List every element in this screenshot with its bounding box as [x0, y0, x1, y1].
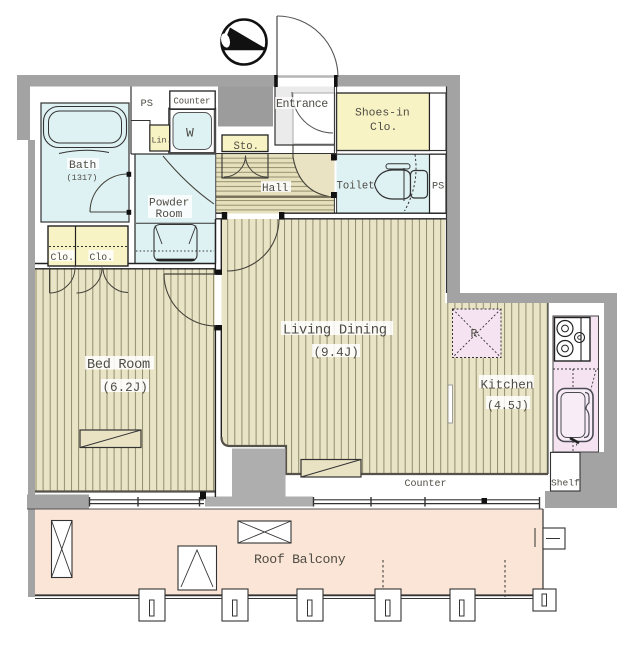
svg-text:(1317): (1317) [67, 173, 98, 183]
svg-text:W: W [186, 126, 194, 141]
svg-text:Room: Room [156, 209, 183, 221]
svg-text:Clo.: Clo. [370, 122, 397, 134]
svg-text:PS: PS [141, 98, 153, 110]
svg-text:PS: PS [432, 182, 444, 193]
svg-text:Bed Room: Bed Room [87, 358, 150, 373]
svg-text:Counter: Counter [405, 479, 447, 490]
svg-text:Counter: Counter [174, 97, 211, 107]
svg-text:Entrance: Entrance [276, 98, 328, 111]
svg-text:Shelf: Shelf [551, 478, 580, 489]
svg-text:Shoes-in: Shoes-in [355, 108, 410, 120]
svg-text:Living Dining: Living Dining [283, 323, 387, 339]
svg-text:R: R [471, 328, 478, 341]
svg-text:(6.2J): (6.2J) [103, 381, 148, 395]
svg-text:Roof Balcony: Roof Balcony [254, 552, 346, 567]
svg-text:Toilet: Toilet [337, 181, 375, 193]
svg-text:Sto.: Sto. [234, 141, 259, 153]
svg-text:Kitchen: Kitchen [481, 379, 534, 393]
svg-text:Powder: Powder [149, 198, 189, 210]
svg-text:(4.5J): (4.5J) [487, 400, 529, 413]
svg-text:(9.4J): (9.4J) [314, 346, 359, 360]
svg-text:Hall: Hall [262, 183, 288, 195]
svg-text:Clo.: Clo. [51, 252, 75, 263]
svg-text:Clo.: Clo. [90, 252, 114, 263]
svg-text:Lin.: Lin. [152, 136, 172, 146]
svg-text:Bath: Bath [69, 160, 96, 172]
